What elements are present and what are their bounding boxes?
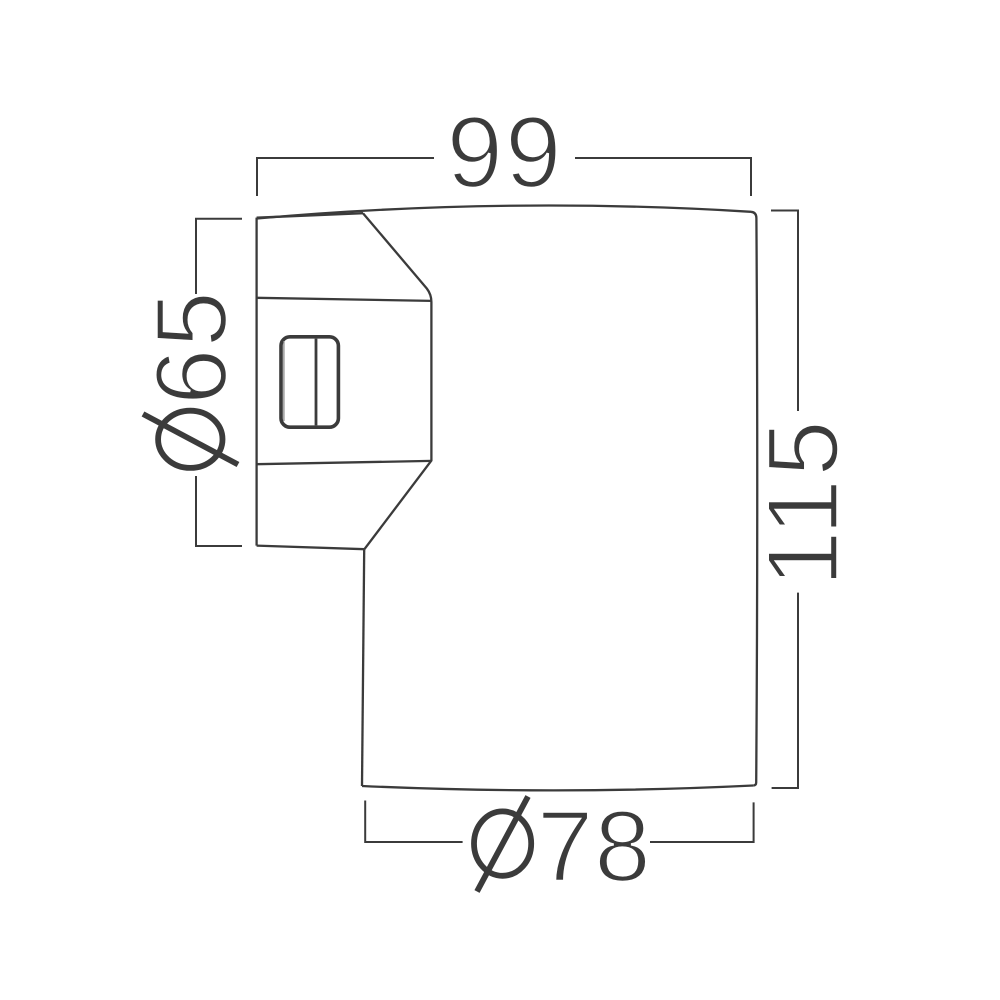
svg-text:78: 78	[537, 789, 652, 903]
svg-text:65: 65	[134, 290, 248, 405]
svg-text:99: 99	[447, 95, 564, 209]
svg-text:115: 115	[745, 418, 859, 587]
